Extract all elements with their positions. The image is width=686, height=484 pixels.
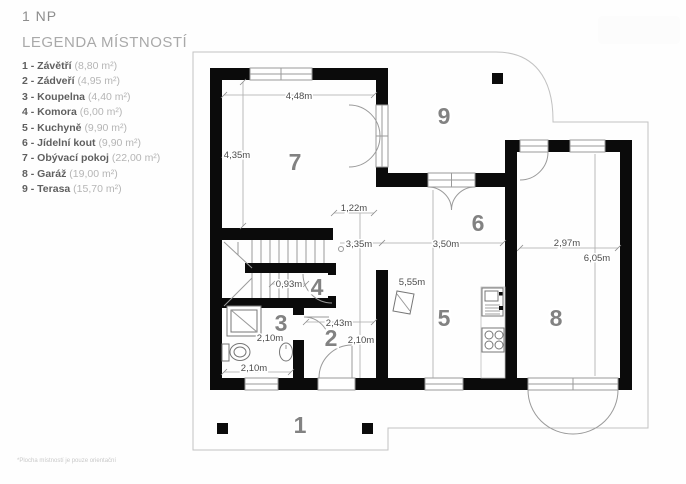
terrace-pillar <box>492 73 503 84</box>
kitchen-sink-icon <box>482 288 503 316</box>
dim-label: 6,05m <box>584 253 610 264</box>
dim-label: 2,10m <box>241 363 267 374</box>
porch-pillar <box>362 423 373 434</box>
dim-label: 3,35m <box>346 239 372 250</box>
dim-label: 1,22m <box>341 203 367 214</box>
window-living-room-icon <box>250 68 312 80</box>
dim-label: 4,48m <box>286 91 312 102</box>
stove-icon <box>482 328 504 352</box>
french-door-icon <box>349 105 388 167</box>
room-label-kitchen: 5 <box>438 305 451 331</box>
room-label-terrace: 9 <box>438 103 451 129</box>
dim-label: 2,97m <box>554 238 580 249</box>
window-garage-icon <box>570 140 605 152</box>
bathroom-sink-icon <box>280 343 293 361</box>
dim-label: 4,35m <box>224 150 250 161</box>
room-label-entry: 2 <box>325 325 338 351</box>
room-label-living-room: 7 <box>289 149 302 175</box>
window-kitchen-icon <box>425 378 463 390</box>
room-label-bathroom: 3 <box>275 310 288 336</box>
entrance-door-icon <box>318 345 355 390</box>
room-label-porch: 1 <box>294 412 307 438</box>
dim-label: 5,55m <box>399 277 425 288</box>
room-label-pantry: 4 <box>311 274 324 300</box>
garage-gate-icon <box>528 378 618 434</box>
toilet-icon <box>222 344 250 362</box>
garage-side-door-icon <box>520 140 548 180</box>
room-label-garage: 8 <box>550 305 563 331</box>
dim-label: 2,10m <box>348 335 374 346</box>
porch-pillar <box>217 423 228 434</box>
dim-label: 3,50m <box>433 239 459 250</box>
terrace-door-icon <box>428 173 475 210</box>
dim-label: 0,93m <box>276 279 302 290</box>
appliance-icon <box>393 291 414 314</box>
room-label-dining: 6 <box>472 210 485 236</box>
floorplan-page: 1 NP LEGENDA MÍSTNOSTÍ 1 - Závětří (8,80… <box>0 0 686 484</box>
footnote: *Plocha místností je pouze orientační <box>17 458 116 464</box>
window-bathroom-icon <box>245 378 278 390</box>
shower-icon <box>227 306 261 336</box>
floor-plan-canvas: 4,48m 4,35m 1,22m 3,35m 3,50m 5,55m 2,97… <box>0 0 686 484</box>
